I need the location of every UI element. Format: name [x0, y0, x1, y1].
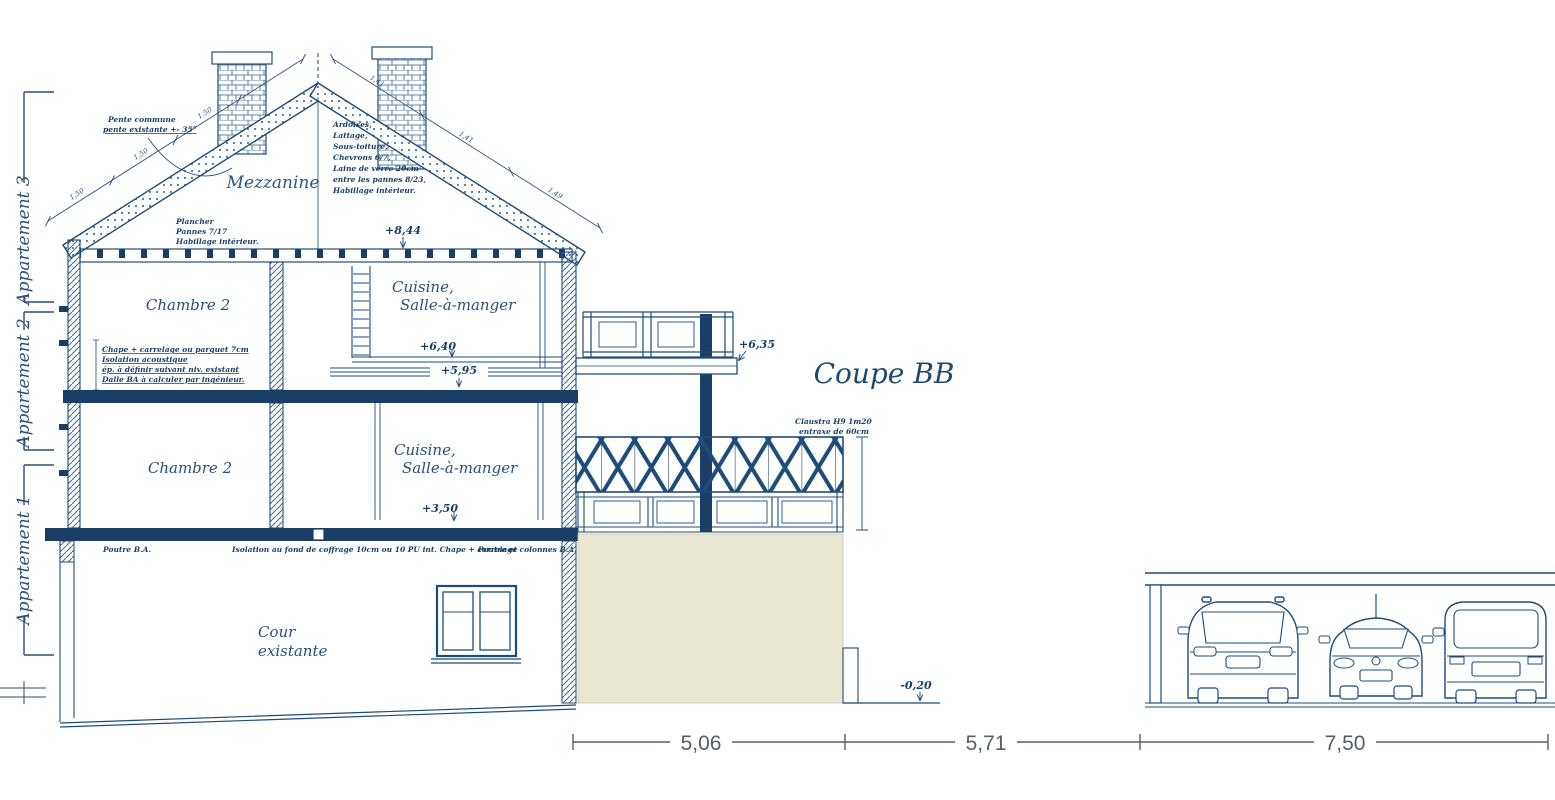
roof-dim-left-3: 1,50: [196, 105, 214, 120]
slab-column-marker: [313, 529, 324, 540]
balcony-column: [700, 314, 712, 532]
car-sedan-light-left: [1334, 658, 1354, 668]
roof-slope-right: [310, 83, 585, 265]
car-sedan-mirror-right: [1422, 636, 1433, 643]
car-sedan-plate: [1360, 670, 1392, 681]
roof-dim-left-1: 1,50: [68, 186, 86, 201]
wall-right-ground: [562, 541, 576, 703]
label-chambre-upper: Chambre 2: [146, 296, 230, 314]
wall-left-detail-3: [59, 424, 68, 430]
svg-text:ép. à définir suivant niv. exi: ép. à définir suivant niv. existant: [102, 365, 240, 374]
note-pente-1: Pente commune: [107, 115, 176, 124]
svg-text:Habillage intérieur.: Habillage intérieur.: [332, 186, 416, 195]
terrace-claustra-lattice: [576, 437, 843, 492]
label-appartement-2: Appartement 2: [14, 318, 34, 449]
stair-section: [352, 266, 370, 358]
svg-text:Chape + carrelage ou parquet 7: Chape + carrelage ou parquet 7cm: [102, 345, 249, 354]
wall-left-detail-2: [59, 340, 68, 346]
chimney-right-cap: [372, 47, 432, 59]
car-van-rear-window: [1454, 610, 1538, 648]
note-claustra-2: entraxe de 60cm: [799, 427, 869, 436]
wall-left-detail-4: [59, 470, 68, 476]
elev-ground: -0,20: [900, 679, 932, 692]
note-isolation: Isolation au fond de coffrage 10cm ou 10…: [231, 545, 517, 554]
roof-dim-right-2: 1,41: [457, 130, 474, 145]
note-beam-left: Poutre B.A.: [102, 545, 151, 554]
label-cour-2: existante: [258, 642, 327, 660]
left-boundary-lines: [60, 541, 74, 722]
car-sedan: [1319, 594, 1433, 699]
car-sedan-rear-window: [1344, 629, 1408, 648]
kitchen-raised-floor: [352, 357, 562, 362]
label-appartement-1: Appartement 1: [14, 495, 34, 626]
car-sedan-wheel-left: [1340, 686, 1358, 699]
roof-rail-left: [1202, 597, 1211, 602]
svg-text:Dalle BA à calculer par ingéni: Dalle BA à calculer par ingénieur.: [101, 375, 245, 384]
car-sedan-mirror-left: [1319, 636, 1330, 643]
label-cour-1: Cour: [258, 623, 296, 641]
cour-window: [431, 586, 521, 663]
car-van-mirror-left: [1433, 628, 1444, 636]
svg-text:Habillage intérieur.: Habillage intérieur.: [175, 237, 259, 246]
carport-roof: [1145, 573, 1555, 585]
wall-left-detail-1: [59, 306, 68, 312]
wall-partition-upper: [270, 262, 283, 390]
car-van-light-right: [1528, 657, 1542, 664]
car-suv-plate: [1226, 656, 1260, 668]
svg-text:Sous-toiture,: Sous-toiture,: [333, 142, 388, 151]
car-suv-mirror-right: [1297, 627, 1308, 634]
car-suv-light-left: [1194, 647, 1216, 656]
slab-floor1: [45, 528, 578, 541]
window-sill: [431, 659, 521, 663]
elev-floor1: +3,50: [422, 502, 458, 515]
walls: [59, 240, 576, 528]
svg-text:entre les pannes 8/23,: entre les pannes 8/23,: [333, 175, 426, 184]
roof-rail-right: [1275, 597, 1284, 602]
roof-dim-left-2: 1,50: [132, 146, 150, 161]
label-cuisine-lower-1: Cuisine,: [394, 441, 456, 459]
claustra-dim-line: [856, 437, 868, 530]
car-suv: [1178, 597, 1308, 703]
car-van-wheel-left: [1456, 690, 1476, 703]
car-suv-wheel-left: [1198, 688, 1218, 703]
svg-text:Pannes 7/17: Pannes 7/17: [175, 227, 228, 236]
low-wall: [843, 648, 858, 703]
upper-balcony: [576, 312, 737, 374]
svg-text:Isolation acoustique: Isolation acoustique: [101, 355, 188, 364]
car-sedan-light-right: [1398, 658, 1418, 668]
ground-floor: Cour existante: [60, 541, 576, 727]
wall-left-exterior: [68, 240, 80, 528]
elev-attic: +8,44: [385, 224, 421, 237]
label-cuisine-upper-2: Salle-à-manger: [400, 296, 516, 314]
elev-balcony: +6,35: [739, 338, 775, 351]
cuisine-upper-right-wall: [540, 262, 545, 368]
dim-5-06: 5,06: [681, 732, 722, 755]
attic-floor: [80, 249, 572, 262]
wall-partition-lower: [270, 403, 283, 528]
elev-kitchen: +6,40: [420, 340, 456, 353]
car-suv-rear-window: [1202, 612, 1284, 643]
ground-datum-lines: [0, 681, 46, 704]
dim-7-50: 7,50: [1325, 732, 1366, 755]
car-suv-light-right: [1270, 647, 1292, 656]
section-title: Coupe BB: [814, 357, 955, 390]
note-pente-2: pente existante +- 35°: [103, 125, 197, 134]
svg-text:Laine de verre 20cm: Laine de verre 20cm: [332, 164, 419, 173]
car-van: [1433, 602, 1546, 703]
note-plancher: Plancher Pannes 7/17 Habillage intérieur…: [175, 217, 259, 246]
chimney-left-cap: [212, 52, 272, 64]
roof: [63, 53, 585, 265]
svg-text:Ardoises,: Ardoises,: [332, 120, 372, 129]
left-pier: [60, 541, 74, 562]
garage-block: [578, 534, 843, 703]
car-sedan-emblem: [1372, 657, 1380, 665]
roof-dim-right-3: 1,49: [546, 186, 564, 201]
drawing-canvas: Appartement 3 Appartement 2 Appartement …: [0, 0, 1555, 800]
label-appartement-3: Appartement 3: [14, 175, 34, 306]
label-cuisine-upper-1: Cuisine,: [392, 278, 454, 296]
car-van-wheel-right: [1516, 690, 1536, 703]
note-claustra-1: Claustra H9 1m20: [795, 417, 873, 426]
section-drawing-coupe-bb: Appartement 3 Appartement 2 Appartement …: [0, 0, 1555, 800]
car-suv-mirror-left: [1178, 627, 1189, 634]
dim-5-71: 5,71: [966, 732, 1007, 755]
label-cuisine-lower-2: Salle-à-manger: [402, 459, 518, 477]
svg-text:Lattage,: Lattage,: [332, 131, 368, 140]
car-van-light-left: [1450, 657, 1464, 664]
car-sedan-wheel-right: [1394, 686, 1412, 699]
car-suv-wheel-right: [1268, 688, 1288, 703]
slab-floor2: [63, 390, 578, 403]
label-chambre-lower: Chambre 2: [148, 459, 232, 477]
carport-post: [1150, 585, 1161, 703]
elev-floor2: +5,95: [441, 364, 477, 377]
ground-slope: [60, 705, 576, 727]
elev-balcony-arrow: [739, 351, 746, 360]
car-van-plate: [1472, 662, 1520, 676]
svg-text:Plancher: Plancher: [175, 217, 215, 226]
label-mezzanine: Mezzanine: [226, 173, 320, 193]
svg-text:Chevrons 6/7,: Chevrons 6/7,: [333, 153, 391, 162]
note-chape: Chape + carrelage ou parquet 7cm Isolati…: [93, 340, 249, 390]
